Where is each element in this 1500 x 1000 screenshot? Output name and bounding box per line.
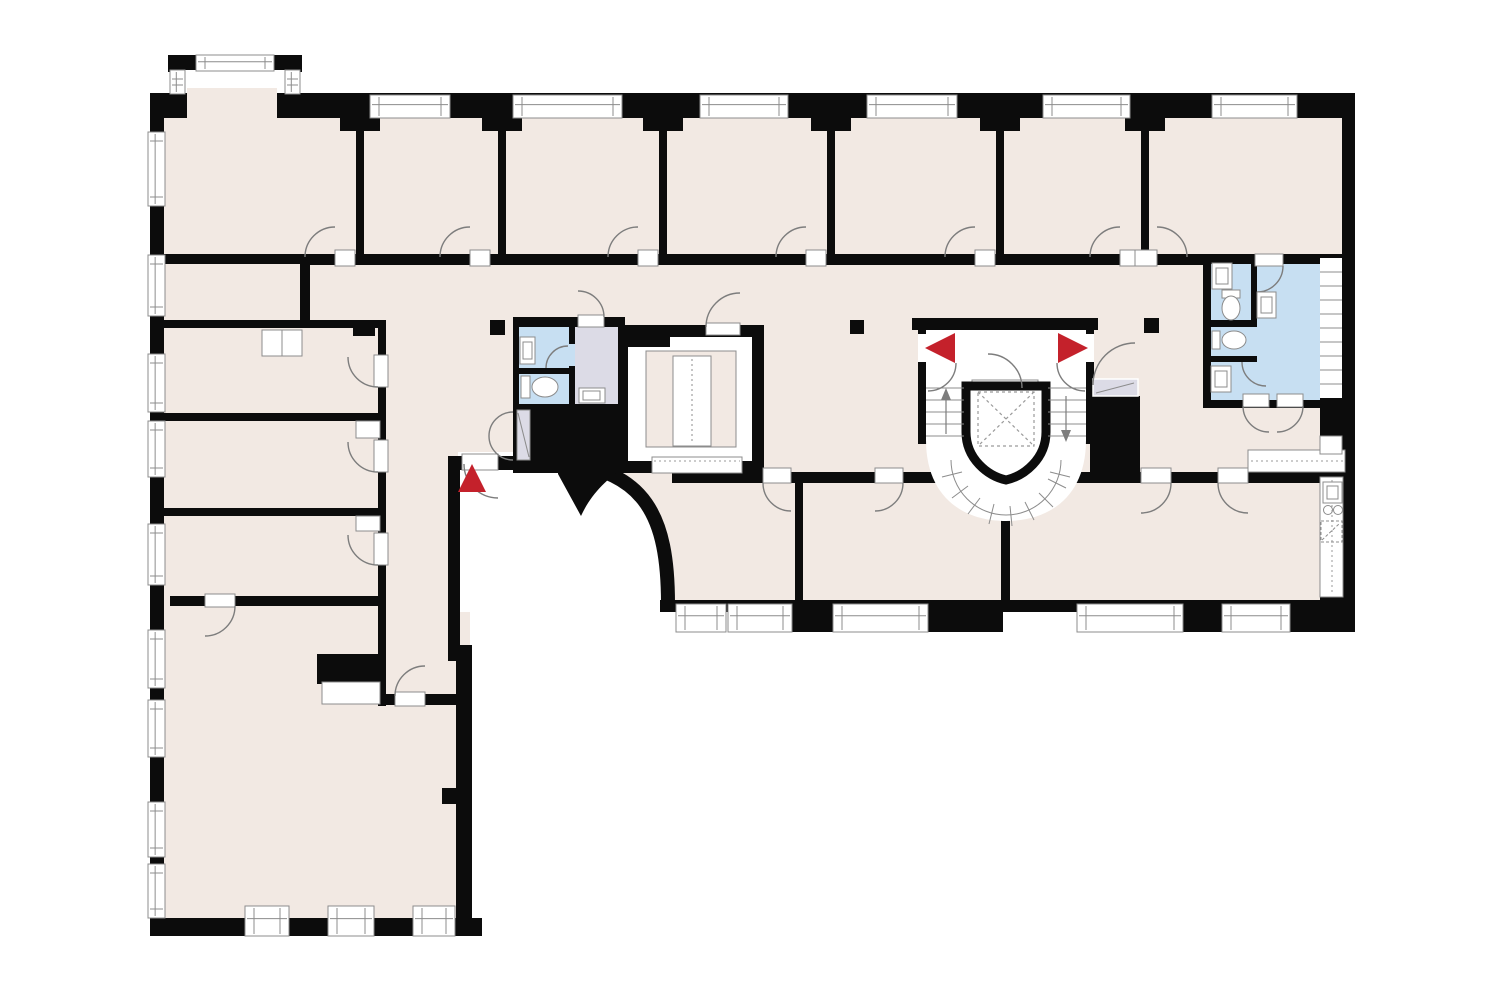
toilet-tank bbox=[1212, 331, 1220, 349]
door-threshold bbox=[1255, 254, 1283, 266]
wall-bottom-chunk bbox=[928, 610, 1003, 632]
door-threshold bbox=[875, 468, 903, 483]
window-frame bbox=[245, 906, 289, 936]
window-frame bbox=[1077, 604, 1183, 632]
wall-partition bbox=[1141, 128, 1149, 264]
window-frame bbox=[1043, 95, 1130, 118]
wall-right bbox=[1342, 93, 1355, 612]
wc-right-door-gap bbox=[1264, 364, 1270, 386]
wall-room-divider bbox=[163, 508, 385, 516]
window bbox=[676, 604, 726, 632]
door-threshold bbox=[1218, 468, 1248, 483]
wall-partition bbox=[827, 128, 835, 264]
toilet-tank bbox=[521, 376, 530, 398]
door-threshold bbox=[205, 594, 235, 607]
window-frame bbox=[170, 70, 185, 94]
wall-pier-notch bbox=[811, 118, 851, 131]
wall-stair-top bbox=[912, 318, 1098, 330]
bay-side-window bbox=[285, 70, 300, 94]
window bbox=[1043, 95, 1130, 118]
sink bbox=[1211, 366, 1231, 392]
window bbox=[148, 354, 165, 412]
door-threshold bbox=[374, 355, 388, 387]
window-frame bbox=[867, 95, 957, 118]
closet bbox=[262, 330, 282, 356]
wall-partition bbox=[498, 128, 506, 264]
wall-niche bbox=[356, 516, 380, 531]
wall-corridor-right bbox=[448, 456, 460, 652]
column bbox=[1144, 318, 1159, 333]
window-frame bbox=[833, 604, 928, 632]
window bbox=[148, 524, 165, 585]
door-threshold bbox=[638, 250, 658, 266]
window-frame bbox=[1222, 604, 1290, 632]
bay-room-floor bbox=[187, 88, 277, 120]
window-frame bbox=[1212, 95, 1297, 118]
closet bbox=[282, 330, 302, 356]
window bbox=[370, 95, 450, 118]
door-threshold bbox=[462, 454, 498, 470]
window-frame bbox=[148, 421, 165, 477]
wall-kitchen-chunk bbox=[1320, 596, 1342, 612]
window bbox=[833, 604, 928, 632]
wall-strip-chunk bbox=[1320, 398, 1342, 438]
window-frame bbox=[148, 132, 165, 206]
wall-corridor-step bbox=[448, 645, 472, 661]
door-threshold bbox=[763, 468, 791, 483]
sink bbox=[520, 337, 535, 364]
door-threshold bbox=[374, 533, 388, 565]
wall-corner-room-bottom bbox=[163, 320, 385, 328]
wall-pier-notch bbox=[1125, 118, 1165, 131]
window bbox=[148, 630, 165, 688]
door-threshold bbox=[1243, 394, 1269, 407]
floor-plan-canvas bbox=[0, 0, 1500, 1000]
kitchen-sink bbox=[1323, 482, 1342, 503]
window bbox=[728, 604, 792, 632]
toilet-bowl bbox=[1222, 296, 1240, 320]
wall-chunk-stair-right bbox=[1090, 396, 1140, 474]
strip-niche bbox=[1320, 436, 1342, 454]
window-frame bbox=[148, 864, 165, 918]
window bbox=[1212, 95, 1297, 118]
window-frame bbox=[728, 604, 792, 632]
wall-pier-notch bbox=[482, 118, 522, 131]
window bbox=[148, 255, 165, 316]
door-threshold bbox=[975, 250, 995, 266]
wc-small-door-gap bbox=[569, 344, 575, 366]
bay-side-window bbox=[170, 70, 185, 94]
wall-bay-corner bbox=[274, 55, 302, 72]
window-frame bbox=[196, 55, 274, 71]
window-frame bbox=[413, 906, 455, 936]
door-threshold bbox=[806, 250, 826, 266]
window bbox=[1077, 604, 1183, 632]
wall-bay-corner bbox=[168, 55, 196, 72]
wall-partition-lower bbox=[795, 472, 803, 608]
window bbox=[148, 421, 165, 477]
toilet-bowl bbox=[1222, 331, 1246, 349]
floor-plan-page: Building floor plan bbox=[0, 0, 1500, 1000]
door-threshold bbox=[1135, 250, 1157, 266]
door-threshold bbox=[1141, 468, 1171, 483]
wall-niche bbox=[356, 421, 380, 438]
column bbox=[442, 788, 458, 804]
window bbox=[148, 132, 165, 206]
window-frame bbox=[285, 70, 300, 94]
window-frame bbox=[676, 604, 726, 632]
window bbox=[513, 95, 622, 118]
wall-room-divider bbox=[163, 413, 385, 421]
door-threshold bbox=[578, 315, 604, 327]
window-frame bbox=[370, 95, 450, 118]
door-threshold bbox=[470, 250, 490, 266]
door-threshold bbox=[395, 692, 425, 706]
wall-room-divider bbox=[170, 596, 385, 606]
window bbox=[148, 700, 165, 757]
column bbox=[850, 320, 864, 334]
door-threshold bbox=[706, 323, 740, 335]
window-frame bbox=[513, 95, 622, 118]
wall-stair-stub bbox=[1001, 520, 1010, 608]
wall-pier-notch bbox=[643, 118, 683, 131]
window bbox=[328, 906, 374, 936]
column bbox=[490, 320, 505, 335]
wall-notch bbox=[353, 320, 375, 336]
window-frame bbox=[328, 906, 374, 936]
door-threshold bbox=[1277, 394, 1303, 407]
wall-pier-notch bbox=[980, 118, 1020, 131]
window bbox=[700, 95, 788, 118]
sink bbox=[1257, 292, 1276, 318]
window bbox=[245, 906, 289, 936]
window bbox=[413, 906, 455, 936]
wall-partition bbox=[996, 128, 1004, 264]
window bbox=[148, 802, 165, 857]
window-frame bbox=[700, 95, 788, 118]
window bbox=[867, 95, 957, 118]
toilet-bowl bbox=[532, 377, 558, 397]
wall-corridor-left bbox=[300, 254, 310, 328]
wall-leftwing-right bbox=[456, 652, 472, 936]
door-threshold bbox=[374, 440, 388, 472]
sink bbox=[1212, 263, 1232, 289]
wall-bottom-chunk bbox=[1183, 610, 1222, 632]
wall-pier-notch bbox=[340, 118, 380, 131]
wall-chunk-bottomleft bbox=[317, 654, 386, 684]
door-gap bbox=[322, 682, 380, 704]
wall-bottom-chunk bbox=[792, 610, 833, 632]
bay-window bbox=[196, 55, 274, 71]
elevator-room-notch bbox=[628, 337, 670, 347]
window-frame bbox=[148, 802, 165, 857]
counter bbox=[652, 457, 742, 473]
wall-partition bbox=[659, 128, 667, 264]
door-threshold bbox=[335, 250, 355, 266]
window bbox=[1222, 604, 1290, 632]
wall-room1-bottom bbox=[163, 254, 303, 264]
window bbox=[148, 864, 165, 918]
wall-partition bbox=[356, 128, 364, 264]
